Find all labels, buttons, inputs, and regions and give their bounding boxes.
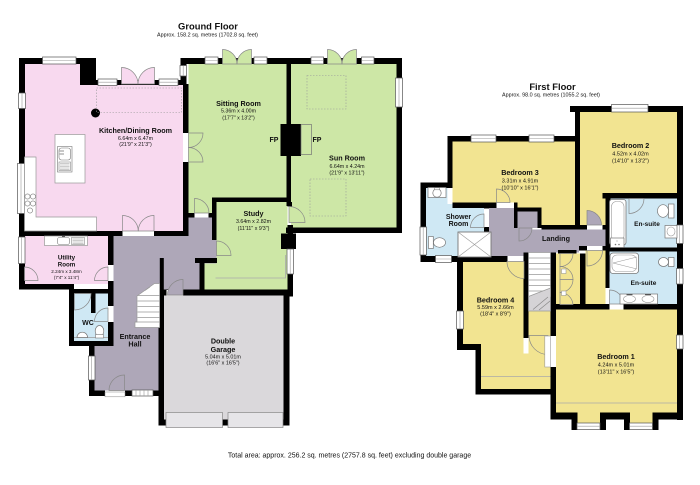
svg-text:3.31m x 4.91m: 3.31m x 4.91m xyxy=(502,178,539,184)
svg-text:Garage: Garage xyxy=(211,345,236,354)
svg-text:2.24m x 3.48m: 2.24m x 3.48m xyxy=(51,269,82,274)
svg-text:4.24m x 5.01m: 4.24m x 5.01m xyxy=(598,363,635,369)
svg-text:Study: Study xyxy=(244,209,264,218)
svg-text:Utility: Utility xyxy=(58,254,76,261)
svg-text:(10'10" x 16'1"): (10'10" x 16'1") xyxy=(502,185,539,191)
svg-text:En-suite: En-suite xyxy=(631,280,657,287)
svg-text:Bedroom 1: Bedroom 1 xyxy=(597,352,635,361)
svg-text:Room: Room xyxy=(449,221,469,228)
svg-text:(13'11" x 16'5"): (13'11" x 16'5") xyxy=(598,370,635,376)
svg-text:Approx. 98.0 sq. metres (1055.: Approx. 98.0 sq. metres (1055.2 sq. feet… xyxy=(502,92,600,98)
svg-text:(11'11" x 9'3"): (11'11" x 9'3") xyxy=(238,226,270,232)
svg-text:Bedroom 3: Bedroom 3 xyxy=(501,168,539,177)
svg-text:Room: Room xyxy=(58,261,76,268)
svg-text:Bedroom 2: Bedroom 2 xyxy=(612,141,650,150)
svg-text:FP: FP xyxy=(270,137,279,144)
svg-text:(14'10" x 13'2"): (14'10" x 13'2") xyxy=(612,158,649,164)
svg-text:6.64m x 4.24m: 6.64m x 4.24m xyxy=(329,164,365,170)
svg-text:(7'4" x 11'4"): (7'4" x 11'4") xyxy=(54,275,80,280)
svg-text:Kitchen/Dining Room: Kitchen/Dining Room xyxy=(99,126,172,135)
svg-text:Bedroom 4: Bedroom 4 xyxy=(477,295,515,304)
svg-text:(18'4" x 8'9"): (18'4" x 8'9") xyxy=(480,312,511,318)
svg-text:4.52m x 4.02m: 4.52m x 4.02m xyxy=(612,151,649,157)
svg-text:Landing: Landing xyxy=(542,234,570,243)
svg-text:(21'9" x 13'11"): (21'9" x 13'11") xyxy=(329,171,364,177)
svg-text:First Floor: First Floor xyxy=(529,81,576,92)
svg-text:6.64m x 6.47m: 6.64m x 6.47m xyxy=(118,136,154,142)
svg-text:Shower: Shower xyxy=(446,214,472,221)
svg-text:Hall: Hall xyxy=(128,340,141,349)
svg-text:Approx. 158.2 sq. metres (1702: Approx. 158.2 sq. metres (1702.8 sq. fee… xyxy=(157,32,258,38)
svg-text:(16'6" x 16'5"): (16'6" x 16'5") xyxy=(206,361,239,367)
svg-text:5.59m x 2.66m: 5.59m x 2.66m xyxy=(477,305,514,311)
svg-text:5.36m x 4.00m: 5.36m x 4.00m xyxy=(221,109,257,115)
svg-text:En-suite: En-suite xyxy=(634,221,660,228)
svg-text:Ground Floor: Ground Floor xyxy=(178,20,238,31)
svg-text:(21'9" x 21'3"): (21'9" x 21'3") xyxy=(119,142,152,148)
svg-text:FP: FP xyxy=(313,137,322,144)
svg-text:Sitting Room: Sitting Room xyxy=(216,99,261,108)
svg-text:Total area: approx. 256.2 sq.: Total area: approx. 256.2 sq. metres (27… xyxy=(228,453,471,460)
svg-text:(17'7" x 13'2"): (17'7" x 13'2") xyxy=(222,115,255,121)
svg-text:WC: WC xyxy=(82,320,94,327)
svg-text:3.64m x 2.82m: 3.64m x 2.82m xyxy=(236,219,272,225)
svg-text:Sun Room: Sun Room xyxy=(329,154,365,163)
